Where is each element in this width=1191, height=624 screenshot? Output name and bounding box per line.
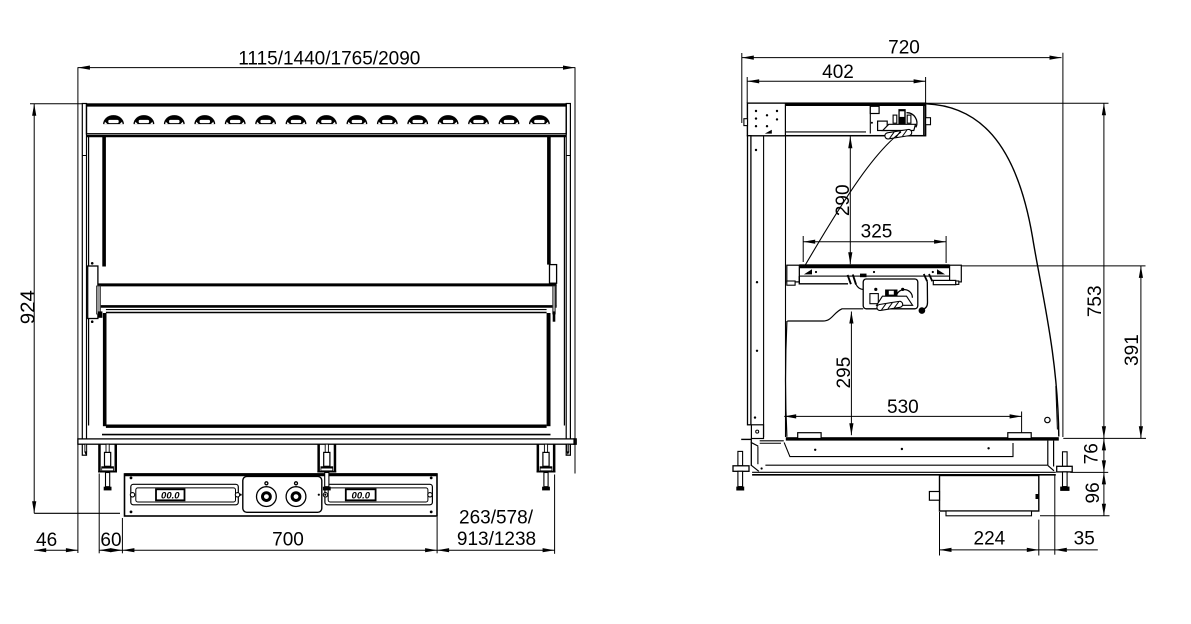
svg-text:530: 530 — [887, 397, 919, 418]
svg-text:00.0: 00.0 — [352, 490, 371, 501]
svg-text:924: 924 — [16, 290, 39, 324]
svg-text:753: 753 — [1085, 285, 1106, 317]
svg-text:76: 76 — [1082, 443, 1103, 464]
svg-text:290: 290 — [833, 184, 854, 216]
svg-text:96: 96 — [1083, 482, 1104, 503]
svg-text:720: 720 — [888, 37, 920, 58]
svg-text:700: 700 — [272, 530, 304, 551]
svg-text:402: 402 — [822, 62, 854, 83]
svg-text:295: 295 — [834, 357, 855, 389]
svg-text:913/1238: 913/1238 — [457, 529, 536, 550]
svg-text:46: 46 — [36, 530, 57, 551]
svg-text:00.0: 00.0 — [161, 490, 180, 501]
svg-text:263/578/: 263/578/ — [459, 508, 534, 529]
svg-text:391: 391 — [1122, 334, 1143, 366]
svg-text:224: 224 — [974, 529, 1006, 550]
svg-text:60: 60 — [100, 530, 121, 551]
svg-text:35: 35 — [1074, 528, 1095, 549]
svg-text:325: 325 — [861, 222, 893, 243]
svg-text:1115/1440/1765/2090: 1115/1440/1765/2090 — [238, 49, 420, 70]
